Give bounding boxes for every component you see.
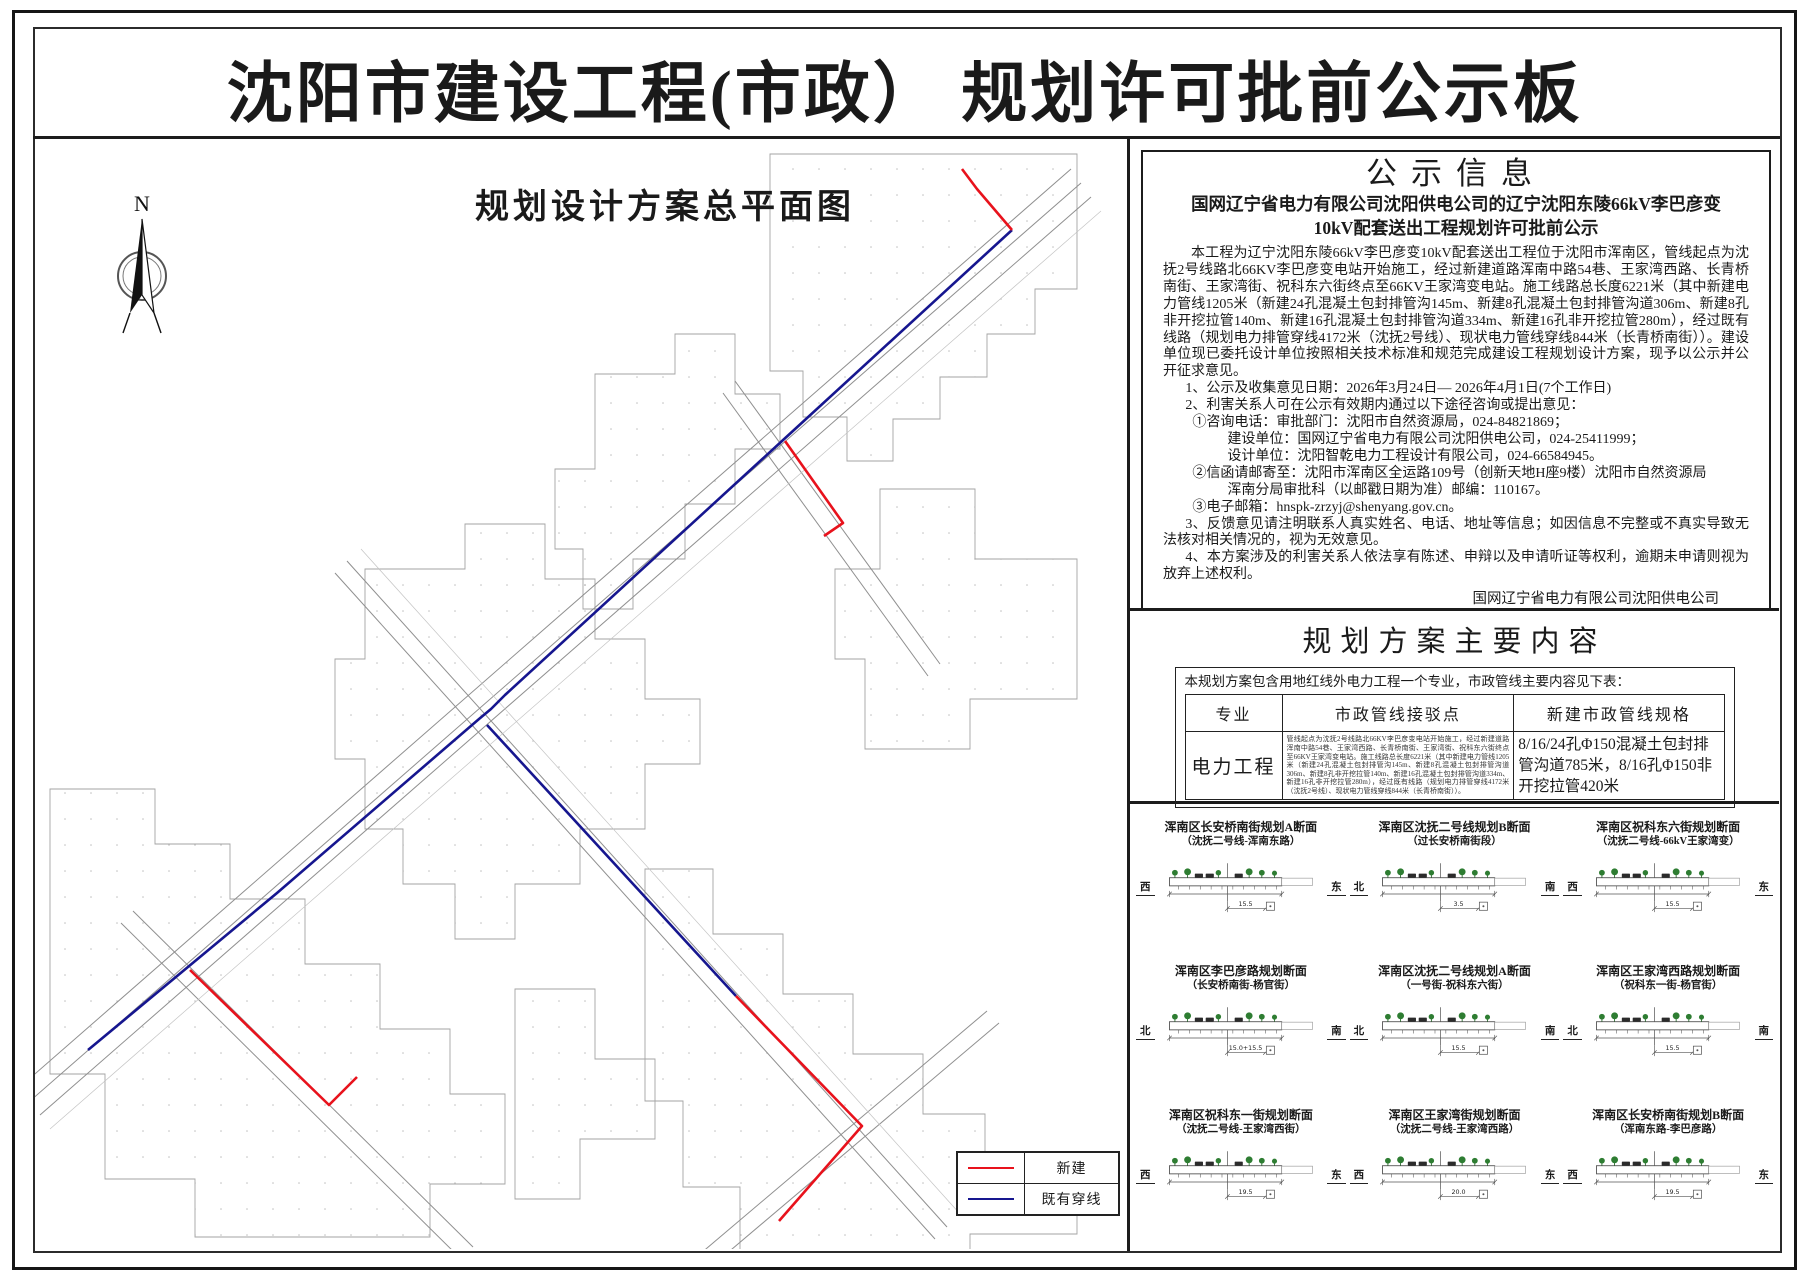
notice-item-3: 3、反馈意见请注明联系人真实姓名、电话、地址等信息；如因信息不完整或不真实导致无…	[1163, 517, 1749, 551]
direction-right-label: 东	[1327, 1167, 1346, 1184]
section-title: 浑南区祝科东六街规划断面	[1561, 820, 1775, 835]
section-title: 浑南区沈抚二号线规划A断面	[1348, 964, 1562, 979]
parcel-outlines	[50, 154, 1077, 1249]
section-cell-3: 浑南区祝科东六街规划断面 （沈抚二号线-66kV王家湾变） 西 15.5 东	[1561, 812, 1775, 956]
svg-text:N: N	[134, 191, 150, 216]
notice-item-2-1: ①咨询电话：审批部门：沈阳市自然资源局，024-84821869；	[1163, 415, 1749, 432]
section-figure: 西 15.5 东	[1134, 853, 1348, 945]
section-cell-9: 浑南区长安桥南街规划B断面 （浑南东路-李巴彦路） 西 19.5 东	[1561, 1100, 1775, 1244]
notice-body: 本工程为辽宁沈阳东陵66kV李巴彦变10kV配套送出工程位于沈阳市浑南区，管线起…	[1163, 246, 1749, 584]
direction-right-label: 南	[1541, 879, 1560, 896]
section-figure: 北 3.5 南	[1348, 853, 1562, 945]
notice-subtitle-line2: 10kV配套送出工程规划许可批前公示	[1163, 218, 1749, 240]
road-cross-section-diagram: 20.0	[1368, 1143, 1540, 1221]
section-title: 浑南区长安桥南街规划B断面	[1561, 1108, 1775, 1123]
section-title: 浑南区长安桥南街规划A断面	[1134, 820, 1348, 835]
page-title: 沈阳市建设工程(市政） 规划许可批前公示板	[0, 40, 1809, 136]
section-figure: 北 15.5 南	[1561, 997, 1775, 1089]
notice-subtitle-line1: 国网辽宁省电力有限公司沈阳供电公司的辽宁沈阳东陵66kV李巴彦变	[1163, 194, 1749, 216]
notice-item-2-3: ③电子邮箱：hnspk-zrzyj@shenyang.gov.cn。	[1163, 500, 1749, 517]
cell-connection: 管线起点为沈抚2号线路北66KV李巴彦变电站开始施工，经过新建道路浑南中路54巷…	[1282, 732, 1514, 800]
plan-content-box: 规划方案主要内容 本规划方案包含用地红线外电力工程一个专业，市政管线主要内容见下…	[1130, 608, 1779, 804]
direction-left-label: 西	[1563, 1167, 1582, 1184]
section-figure: 西 15.5 东	[1561, 853, 1775, 945]
plan-table-header-row: 专业 市政管线接驳点 新建市政管线规格	[1185, 695, 1724, 732]
direction-left-label: 西	[1563, 879, 1582, 896]
section-subtitle: （过长安桥南街段）	[1348, 835, 1562, 849]
svg-text:15.5: 15.5	[1238, 901, 1252, 908]
section-cell-7: 浑南区祝科东一街规划断面 （沈抚二号线-王家湾西街） 西 19.5 东	[1134, 1100, 1348, 1244]
svg-text:15.5: 15.5	[1452, 1045, 1466, 1052]
public-notice-box: 公示信息 国网辽宁省电力有限公司沈阳供电公司的辽宁沈阳东陵66kV李巴彦变 10…	[1141, 150, 1771, 610]
direction-left-label: 西	[1136, 1167, 1155, 1184]
svg-text:15.5: 15.5	[1666, 901, 1680, 908]
plan-table: 专业 市政管线接驳点 新建市政管线规格 电力工程 管线起点为沈抚2号线路北66K…	[1185, 694, 1725, 800]
section-subtitle: （长安桥南街-杨官街）	[1134, 979, 1348, 993]
notice-item-1: 1、公示及收集意见日期：2026年3月24日— 2026年4月1日(7个工作日)	[1163, 381, 1749, 398]
direction-left-label: 北	[1350, 879, 1369, 896]
road-cross-section-diagram: 15.5	[1155, 855, 1327, 933]
direction-left-label: 北	[1350, 1023, 1369, 1040]
notice-item-2-2b: 浑南分局审批科（以邮戳日期为准）邮编：110167。	[1163, 483, 1749, 500]
section-subtitle: （浑南东路-李巴彦路）	[1561, 1123, 1775, 1137]
plan-title: 规划方案主要内容	[1130, 618, 1779, 660]
cell-spec: 8/16/24孔Φ150混凝土包封排管沟道785米，8/16孔Φ150非开挖拉管…	[1514, 732, 1724, 800]
north-arrow-icon: N	[107, 191, 177, 341]
map-legend: 新建 既有穿线	[956, 1151, 1120, 1216]
plan-intro: 本规划方案包含用地红线外电力工程一个专业，市政管线主要内容见下表：	[1185, 673, 1725, 690]
svg-text:19.5: 19.5	[1666, 1189, 1680, 1196]
section-subtitle: （沈抚二号线-66kV王家湾变）	[1561, 835, 1775, 849]
header-spec: 新建市政管线规格	[1514, 695, 1724, 732]
section-figure: 西 19.5 东	[1134, 1141, 1348, 1233]
section-cell-2: 浑南区沈抚二号线规划B断面 （过长安桥南街段） 北 3.5 南	[1348, 812, 1562, 956]
section-cell-8: 浑南区王家湾街规划断面 （沈抚二号线-王家湾西路） 西 20.0 东	[1348, 1100, 1562, 1244]
section-cell-6: 浑南区王家湾西路规划断面 （祝科东一街-杨官街） 北 15.5 南	[1561, 956, 1775, 1100]
notice-paragraph: 本工程为辽宁沈阳东陵66kV李巴彦变10kV配套送出工程位于沈阳市浑南区，管线起…	[1163, 246, 1749, 381]
svg-text:15.0+15.5: 15.0+15.5	[1229, 1045, 1262, 1052]
direction-right-label: 东	[1755, 1167, 1774, 1184]
map-title: 规划设计方案总平面图	[435, 179, 895, 228]
notice-item-4: 4、本方案涉及的利害关系人依法享有陈述、申辩以及申请听证等权利，逾期未申请则视为…	[1163, 550, 1749, 584]
svg-text:3.5: 3.5	[1454, 901, 1464, 908]
section-figure: 北 15.0+15.5 南	[1134, 997, 1348, 1089]
section-subtitle: （沈抚二号线-王家湾西路）	[1348, 1123, 1562, 1137]
new-line-sample	[968, 1167, 1014, 1170]
road-cross-section-diagram: 3.5	[1368, 855, 1540, 933]
section-figure: 北 15.5 南	[1348, 997, 1562, 1089]
cross-sections-grid: 浑南区长安桥南街规划A断面 （沈抚二号线-浑南东路） 西 15.5 东 浑南区沈…	[1130, 804, 1779, 1248]
road-cross-section-diagram: 19.5	[1582, 1143, 1754, 1221]
notice-item-2-1c: 设计单位：沈阳智乾电力工程设计有限公司，024-66584945。	[1163, 449, 1749, 466]
legend-swatch-new	[958, 1153, 1025, 1183]
direction-left-label: 西	[1350, 1167, 1369, 1184]
header-connection: 市政管线接驳点	[1282, 695, 1514, 732]
plan-inner-box: 本规划方案包含用地红线外电力工程一个专业，市政管线主要内容见下表： 专业 市政管…	[1175, 667, 1735, 808]
road-cross-section-diagram: 15.5	[1582, 999, 1754, 1077]
master-plan-map-area: 规划设计方案总平面图 N 新建 既有穿线	[35, 139, 1127, 1249]
legend-label-new: 新建	[1025, 1158, 1118, 1178]
notice-item-2-1b: 建设单位：国网辽宁省电力有限公司沈阳供电公司，024-25411999；	[1163, 432, 1749, 449]
section-title: 浑南区王家湾西路规划断面	[1561, 964, 1775, 979]
section-cell-1: 浑南区长安桥南街规划A断面 （沈抚二号线-浑南东路） 西 15.5 东	[1134, 812, 1348, 956]
section-subtitle: （一号街-祝科东六街）	[1348, 979, 1562, 993]
legend-label-existing: 既有穿线	[1025, 1189, 1118, 1209]
section-subtitle: （沈抚二号线-浑南东路）	[1134, 835, 1348, 849]
svg-text:20.0: 20.0	[1452, 1189, 1466, 1196]
direction-left-label: 北	[1136, 1023, 1155, 1040]
notice-item-2-2: ②信函请邮寄至：沈阳市浑南区全运路109号（创新天地H座9楼）沈阳市自然资源局	[1163, 466, 1749, 483]
section-subtitle: （沈抚二号线-王家湾西街）	[1134, 1123, 1348, 1137]
direction-right-label: 东	[1755, 879, 1774, 896]
direction-right-label: 南	[1755, 1023, 1774, 1040]
plan-table-row: 电力工程 管线起点为沈抚2号线路北66KV李巴彦变电站开始施工，经过新建道路浑南…	[1185, 732, 1724, 800]
legend-row-existing: 既有穿线	[958, 1183, 1118, 1214]
section-title: 浑南区沈抚二号线规划B断面	[1348, 820, 1562, 835]
existing-line-sample	[968, 1198, 1014, 1201]
section-title: 浑南区李巴彦路规划断面	[1134, 964, 1348, 979]
signature-company: 国网辽宁省电力有限公司沈阳供电公司	[1163, 590, 1719, 610]
direction-right-label: 南	[1327, 1023, 1346, 1040]
section-figure: 西 20.0 东	[1348, 1141, 1562, 1233]
section-cell-5: 浑南区沈抚二号线规划A断面 （一号街-祝科东六街） 北 15.5 南	[1348, 956, 1562, 1100]
road-cross-section-diagram: 15.5	[1368, 999, 1540, 1077]
section-title: 浑南区祝科东一街规划断面	[1134, 1108, 1348, 1123]
road-cross-section-diagram: 19.5	[1155, 1143, 1327, 1221]
section-title: 浑南区王家湾街规划断面	[1348, 1108, 1562, 1123]
notice-title: 公示信息	[1163, 156, 1749, 192]
legend-row-new: 新建	[958, 1153, 1118, 1183]
direction-right-label: 南	[1541, 1023, 1560, 1040]
cross-sections-box: 浑南区长安桥南街规划A断面 （沈抚二号线-浑南东路） 西 15.5 东 浑南区沈…	[1130, 804, 1779, 1248]
direction-left-label: 北	[1563, 1023, 1582, 1040]
svg-text:15.5: 15.5	[1666, 1045, 1680, 1052]
cell-major: 电力工程	[1185, 732, 1282, 800]
road-cross-section-diagram: 15.0+15.5	[1155, 999, 1327, 1077]
road-cross-section-diagram: 15.5	[1582, 855, 1754, 933]
svg-text:19.5: 19.5	[1238, 1189, 1252, 1196]
master-plan-map	[35, 139, 1127, 1249]
direction-left-label: 西	[1136, 879, 1155, 896]
direction-right-label: 东	[1541, 1167, 1560, 1184]
legend-swatch-existing	[958, 1184, 1025, 1214]
section-cell-4: 浑南区李巴彦路规划断面 （长安桥南街-杨官街） 北 15.0+15.5 南	[1134, 956, 1348, 1100]
notice-item-2: 2、利害关系人可在公示有效期内通过以下途径咨询或提出意见：	[1163, 398, 1749, 415]
header-major: 专业	[1185, 695, 1282, 732]
direction-right-label: 东	[1327, 879, 1346, 896]
section-subtitle: （祝科东一街-杨官街）	[1561, 979, 1775, 993]
section-figure: 西 19.5 东	[1561, 1141, 1775, 1233]
